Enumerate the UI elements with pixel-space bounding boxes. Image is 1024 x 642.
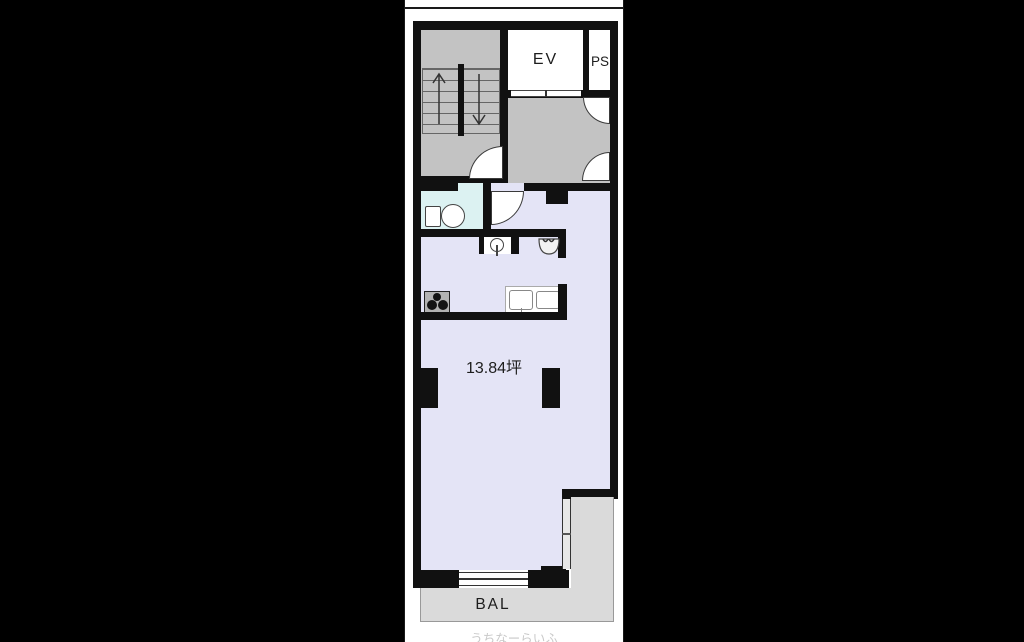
wall-kitchen-right [558, 284, 567, 320]
stairs-down-arrow-icon [471, 70, 487, 132]
watermark: うちなーらいふ [405, 628, 623, 642]
stairs-divider [458, 64, 464, 136]
toilet-tank-icon [425, 206, 441, 227]
stairs-up-arrow-icon [431, 68, 447, 130]
elevator-label: EV [508, 51, 583, 69]
area-label: 13.84坪 [444, 354, 544, 378]
screenshot: EV PS 13.84坪 BAL うちなーらいふ [0, 0, 1024, 642]
wall-counter [413, 312, 567, 320]
bottom-window-rail [459, 578, 528, 580]
washbasin-faucet [496, 245, 498, 256]
sliding-window-tick [562, 533, 571, 535]
pillar-left [421, 368, 438, 408]
floor-plan: EV PS 13.84坪 BAL うちなーらいふ [404, 0, 624, 642]
wall-unit-top-left [413, 183, 458, 191]
plan-border-top [405, 7, 623, 9]
stove-burner [427, 300, 437, 310]
main-room-lower [421, 499, 562, 570]
toilet-bowl-icon [441, 204, 465, 228]
laundry-sink-icon [536, 236, 562, 257]
stove-burner [438, 300, 448, 310]
wall-unit-top-right [524, 183, 618, 191]
wall-bottom-left [413, 570, 459, 588]
wall-left [413, 21, 421, 588]
wall-balcony-corner [541, 566, 566, 588]
pillar-top [546, 191, 568, 204]
elevator-door-track [545, 90, 547, 97]
pipe-space-label: PS [587, 54, 613, 69]
stove-burner [433, 293, 441, 301]
balcony-label: BAL [443, 596, 543, 614]
kitchen-sink-icon [509, 290, 533, 310]
pillar-center [542, 368, 560, 408]
wall-niche-right [511, 229, 519, 254]
kitchen-drainboard-icon [536, 291, 560, 309]
